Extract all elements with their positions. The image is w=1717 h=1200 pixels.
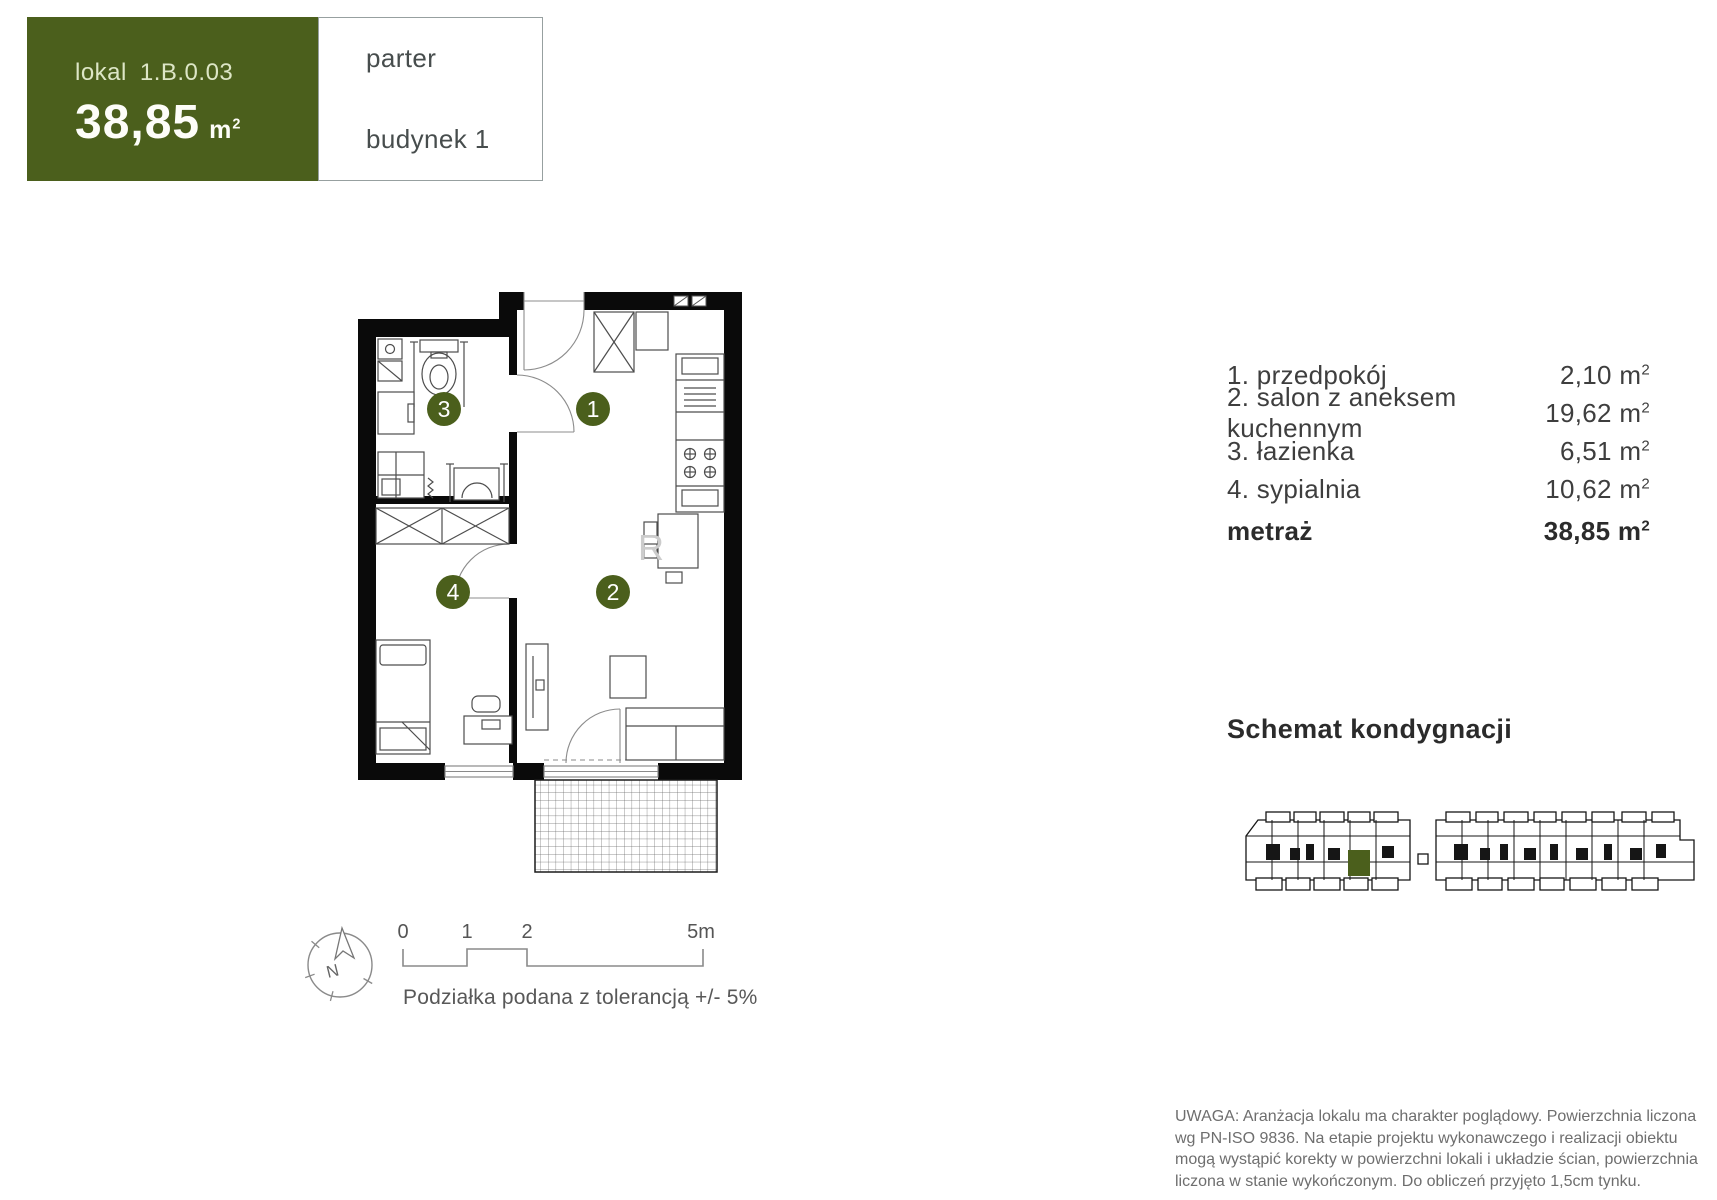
unit-label: lokal	[75, 59, 127, 86]
room-row-4: 4. sypialnia 10,62 m2	[1227, 470, 1650, 508]
connector-block	[1418, 854, 1428, 864]
room-list: 1. przedpokój 2,10 m2 2. salon z aneksem…	[1227, 356, 1650, 550]
north-compass-icon: N	[300, 925, 380, 1005]
north-label: N	[324, 960, 341, 981]
scale-tick-2: 2	[521, 922, 532, 943]
tolerance-note: Podziałka podana z tolerancją +/- 5%	[403, 986, 758, 1010]
bedroom-furniture	[376, 508, 512, 754]
room-area: 6,51 m2	[1560, 436, 1650, 467]
floor-cell: parter	[318, 17, 543, 99]
bed	[376, 640, 430, 754]
disclaimer-note: UWAGA: Aranżacja lokalu ma charakter pog…	[1175, 1106, 1717, 1192]
balcony	[535, 780, 717, 872]
floor-plan-drawing: R 3 1 4 2	[358, 292, 742, 890]
total-area: 38,85 m2	[1544, 516, 1650, 547]
chair	[472, 696, 500, 712]
room-circle-living: 2	[596, 575, 630, 609]
room-name: 3. łazienka	[1227, 436, 1355, 467]
room-circle-bedroom: 4	[436, 575, 470, 609]
room-row-2: 2. salon z aneksem kuchennym 19,62 m2	[1227, 394, 1650, 432]
building-label: budynek 1	[366, 124, 490, 155]
washbasin	[378, 392, 414, 434]
room-circle-bathroom: 3	[427, 392, 461, 426]
room-area: 2,10 m2	[1560, 360, 1650, 391]
highlighted-unit	[1348, 850, 1370, 876]
total-row: metraż 38,85 m2	[1227, 512, 1650, 550]
scale-tick-0: 0	[397, 922, 408, 943]
unit-area-unit: m	[209, 116, 232, 144]
disclaimer-line: liczona w stanie wykończonym. Do oblicze…	[1175, 1171, 1717, 1193]
scale-bar: 0 1 2 5m	[390, 922, 720, 982]
kitchen-counter	[676, 354, 724, 512]
hall-furniture	[594, 312, 668, 372]
unit-number: 1.B.0.03	[140, 59, 233, 86]
unit-area-value: 38,85	[75, 96, 200, 149]
schema-title: Schemat kondygnacji	[1227, 714, 1512, 745]
living-furniture	[526, 514, 724, 760]
bathroom-door	[517, 375, 574, 432]
watermark-letter: R	[638, 527, 664, 568]
coffee-table	[610, 656, 646, 698]
dining-table	[658, 514, 698, 568]
scale-tick-1: 1	[461, 922, 472, 943]
building-1-outline	[1246, 812, 1410, 890]
svg-text:1: 1	[587, 396, 600, 422]
floor-label: parter	[366, 43, 436, 74]
toilet-tank	[420, 340, 458, 352]
building-2-outline	[1436, 812, 1694, 890]
unit-id-line: lokal1.B.0.03	[75, 59, 318, 87]
tv-board	[526, 644, 548, 730]
building-schematic	[1232, 806, 1716, 902]
svg-text:4: 4	[447, 579, 460, 605]
scale-tick-5m: 5m	[687, 922, 715, 943]
svg-text:2: 2	[607, 579, 620, 605]
room-circle-hall: 1	[576, 392, 610, 426]
unit-header-card: lokal1.B.0.03 38,85m2	[27, 17, 318, 181]
entrance-door	[524, 292, 584, 370]
total-label: metraż	[1227, 516, 1313, 547]
disclaimer-line: UWAGA: Aranżacja lokalu ma charakter pog…	[1175, 1106, 1717, 1128]
fridge	[636, 312, 668, 350]
sofa	[626, 708, 724, 760]
disclaimer-line: wg PN-ISO 9836. Na etapie projektu wykon…	[1175, 1128, 1717, 1150]
building-cell: budynek 1	[318, 98, 543, 181]
room-area: 19,62 m2	[1545, 398, 1650, 429]
bedroom-window	[445, 766, 513, 777]
unit-area-line: 38,85m2	[75, 95, 318, 150]
heater-symbol	[428, 478, 433, 498]
svg-text:3: 3	[438, 396, 451, 422]
room-name: 4. sypialnia	[1227, 474, 1361, 505]
unit-area-sup: 2	[232, 117, 241, 133]
room-area: 10,62 m2	[1545, 474, 1650, 505]
disclaimer-line: mogą wystąpić korekty w powierzchni loka…	[1175, 1149, 1717, 1171]
floorplan-page: { "colors": { "green": "#4b5f1c" }, "hea…	[0, 0, 1717, 1200]
